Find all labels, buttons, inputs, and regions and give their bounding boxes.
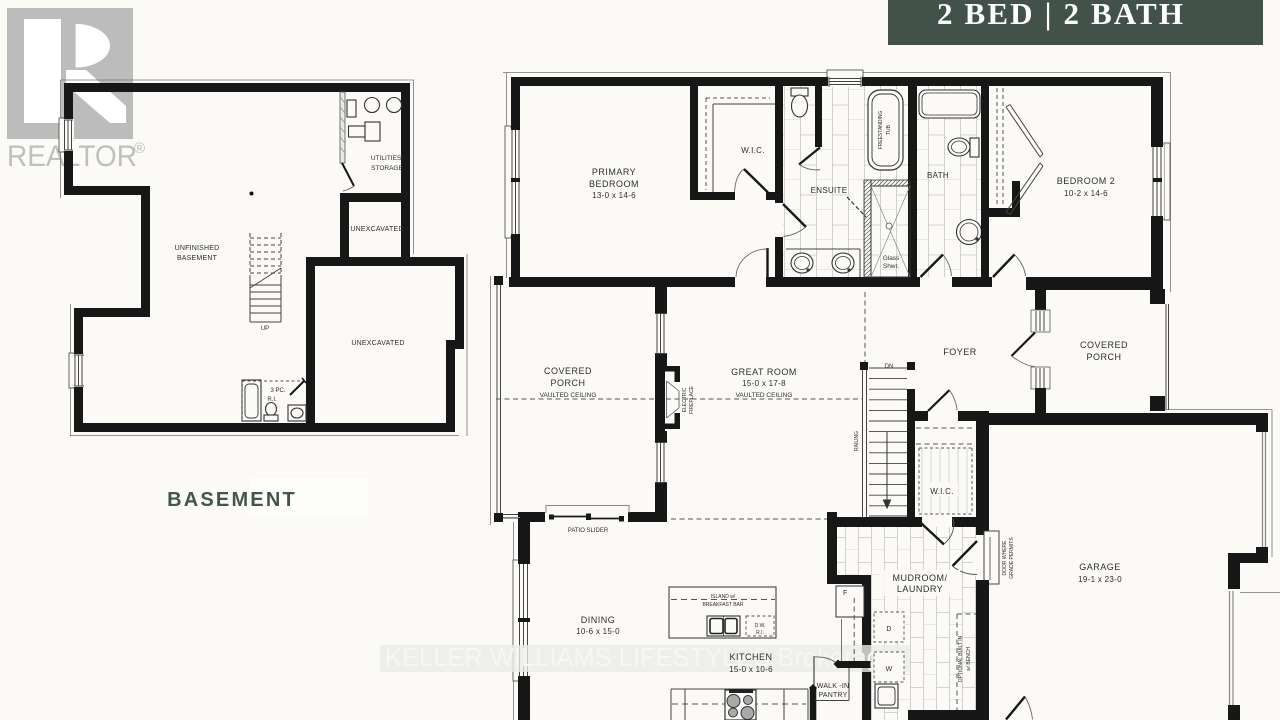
svg-text:15-0 x 10-6: 15-0 x 10-6 (729, 665, 773, 674)
svg-text:TUB: TUB (886, 124, 892, 135)
svg-text:PRIMARY: PRIMARY (592, 167, 636, 177)
svg-text:F: F (843, 590, 847, 597)
svg-text:2 BED | 2 BATH: 2 BED | 2 BATH (937, 0, 1183, 31)
svg-text:ISLAND w/: ISLAND w/ (711, 594, 736, 600)
svg-text:PANTRY: PANTRY (819, 692, 848, 699)
svg-text:RAILING: RAILING (854, 431, 860, 451)
svg-text:FOYER: FOYER (943, 347, 977, 357)
svg-text:W: W (886, 666, 893, 673)
svg-text:COVERED: COVERED (1080, 340, 1128, 350)
svg-text:W.I.C.: W.I.C. (741, 146, 765, 155)
svg-text:UNFINISHED: UNFINISHED (175, 245, 220, 252)
svg-text:FREESTANDING: FREESTANDING (878, 110, 884, 149)
svg-text:COVERED: COVERED (544, 366, 592, 376)
svg-text:ELECTRIC: ELECTRIC (682, 387, 688, 412)
svg-text:PORCH: PORCH (550, 378, 585, 388)
svg-text:D.W.: D.W. (755, 623, 766, 629)
svg-text:DOOR WHERE: DOOR WHERE (1002, 540, 1008, 576)
svg-text:BASEMENT: BASEMENT (177, 255, 218, 262)
svg-text:®: ® (134, 140, 145, 157)
svg-text:OPTIONAL BUILT IN: OPTIONAL BUILT IN (958, 635, 964, 682)
svg-text:10-6 x 15-0: 10-6 x 15-0 (576, 627, 620, 636)
svg-text:DINING: DINING (581, 615, 616, 625)
svg-text:R.I.: R.I. (756, 630, 764, 636)
svg-text:LAUNDRY: LAUNDRY (897, 584, 943, 594)
svg-text:19-1 x 23-0: 19-1 x 23-0 (1078, 575, 1122, 584)
svg-text:Shwr.: Shwr. (883, 263, 899, 270)
svg-text:10-2 x 14-6: 10-2 x 14-6 (1064, 189, 1108, 198)
svg-text:GRADE PERMITS: GRADE PERMITS (1009, 537, 1015, 579)
svg-text:BREAKFAST BAR: BREAKFAST BAR (702, 602, 743, 608)
svg-text:VAULTED CEILING: VAULTED CEILING (736, 392, 793, 399)
svg-text:PATIO SLIDER: PATIO SLIDER (568, 528, 609, 534)
svg-text:STORAGE: STORAGE (371, 165, 403, 172)
svg-text:UTILITIES/: UTILITIES/ (371, 155, 403, 162)
svg-text:WALK -IN: WALK -IN (817, 683, 849, 690)
svg-text:KITCHEN: KITCHEN (729, 652, 772, 662)
svg-text:VAULTED CEILING: VAULTED CEILING (540, 392, 597, 399)
svg-text:DN: DN (885, 364, 894, 370)
svg-text:PORCH: PORCH (1086, 352, 1121, 362)
svg-text:MUDROOM/: MUDROOM/ (893, 573, 948, 583)
svg-text:w/ BENCH: w/ BENCH (966, 647, 972, 671)
svg-text:BASEMENT: BASEMENT (167, 489, 297, 511)
svg-text:D: D (886, 626, 891, 633)
svg-text:BEDROOM: BEDROOM (589, 179, 639, 189)
svg-text:GARAGE: GARAGE (1079, 562, 1121, 572)
svg-text:GREAT ROOM: GREAT ROOM (731, 367, 797, 377)
svg-text:BATH: BATH (927, 171, 949, 180)
svg-text:UNEXCAVATED: UNEXCAVATED (350, 226, 403, 233)
svg-text:W.I.C.: W.I.C. (930, 487, 954, 496)
svg-text:UP: UP (261, 326, 269, 332)
svg-text:UNEXCAVATED: UNEXCAVATED (351, 340, 404, 347)
svg-text:13-0 x 14-6: 13-0 x 14-6 (592, 191, 636, 200)
svg-text:Glass: Glass (883, 255, 900, 262)
svg-text:BEDROOM 2: BEDROOM 2 (1057, 176, 1116, 186)
svg-text:FIREPLACE: FIREPLACE (689, 385, 695, 413)
svg-text:3 PC.: 3 PC. (270, 388, 285, 394)
svg-text:15-0 x 17-8: 15-0 x 17-8 (742, 379, 786, 388)
svg-text:ENSUITE: ENSUITE (811, 186, 848, 195)
